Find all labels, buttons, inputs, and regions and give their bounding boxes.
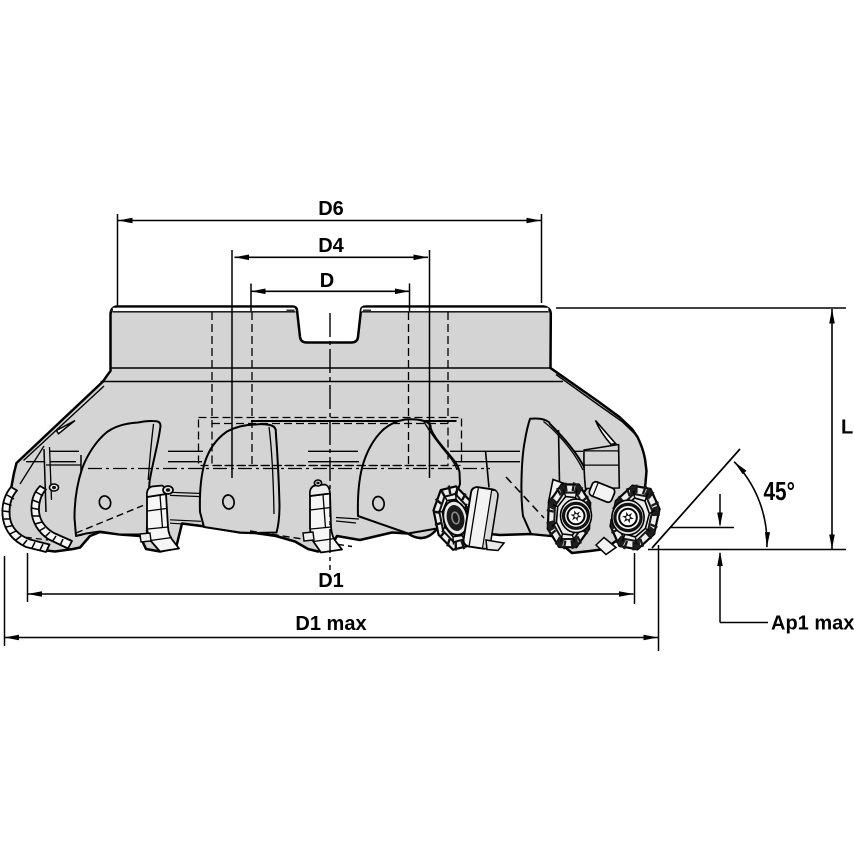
svg-text:D1: D1 [318,570,344,592]
svg-text:D1 max: D1 max [295,613,366,635]
svg-text:D4: D4 [318,235,344,257]
svg-text:D6: D6 [318,198,344,220]
svg-text:45°: 45° [764,477,795,506]
svg-text:D: D [320,270,334,292]
svg-text:L: L [841,417,853,439]
svg-text:Ap1 max: Ap1 max [771,613,854,635]
